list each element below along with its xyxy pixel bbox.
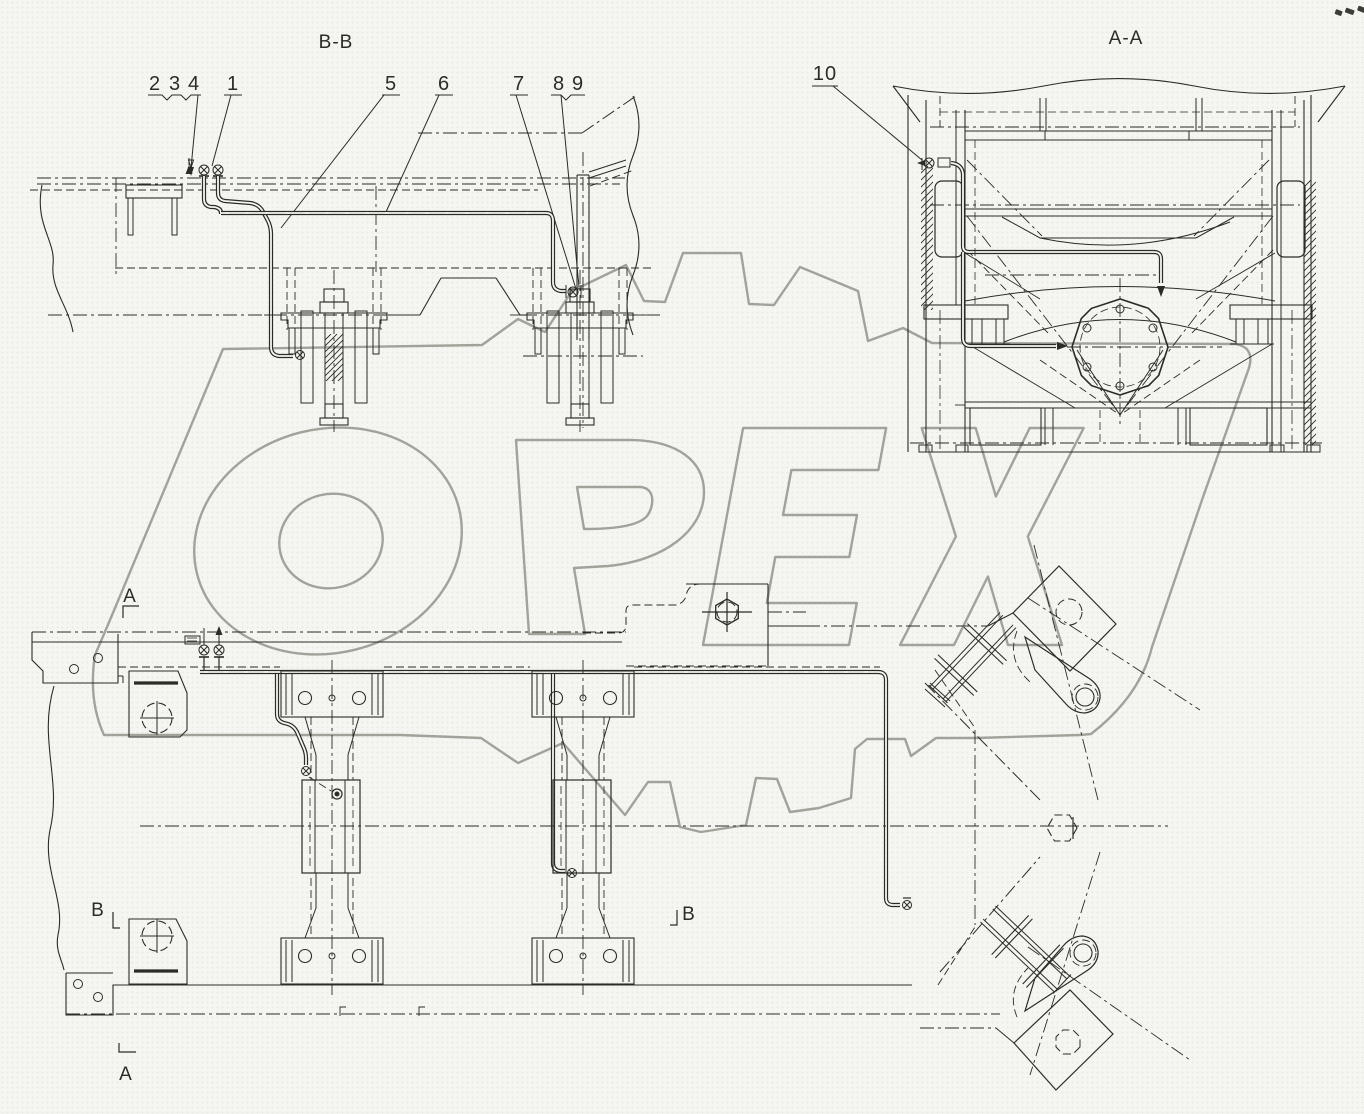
svg-text:8: 8 (553, 73, 565, 95)
svg-text:1: 1 (227, 73, 239, 95)
svg-text:A-A: A-A (1109, 28, 1144, 49)
svg-text:7: 7 (513, 73, 525, 95)
svg-text:9: 9 (572, 73, 584, 95)
svg-text:A: A (123, 586, 137, 607)
svg-text:B: B (682, 904, 696, 925)
svg-text:B: B (91, 900, 105, 921)
svg-text:A: A (119, 1064, 133, 1085)
svg-text:4: 4 (188, 73, 200, 95)
svg-text:3: 3 (169, 73, 181, 95)
svg-text:2: 2 (149, 73, 161, 95)
svg-text:5: 5 (385, 73, 397, 95)
svg-text:B-B: B-B (319, 32, 354, 53)
svg-text:6: 6 (438, 73, 450, 95)
svg-text:10: 10 (813, 63, 837, 85)
